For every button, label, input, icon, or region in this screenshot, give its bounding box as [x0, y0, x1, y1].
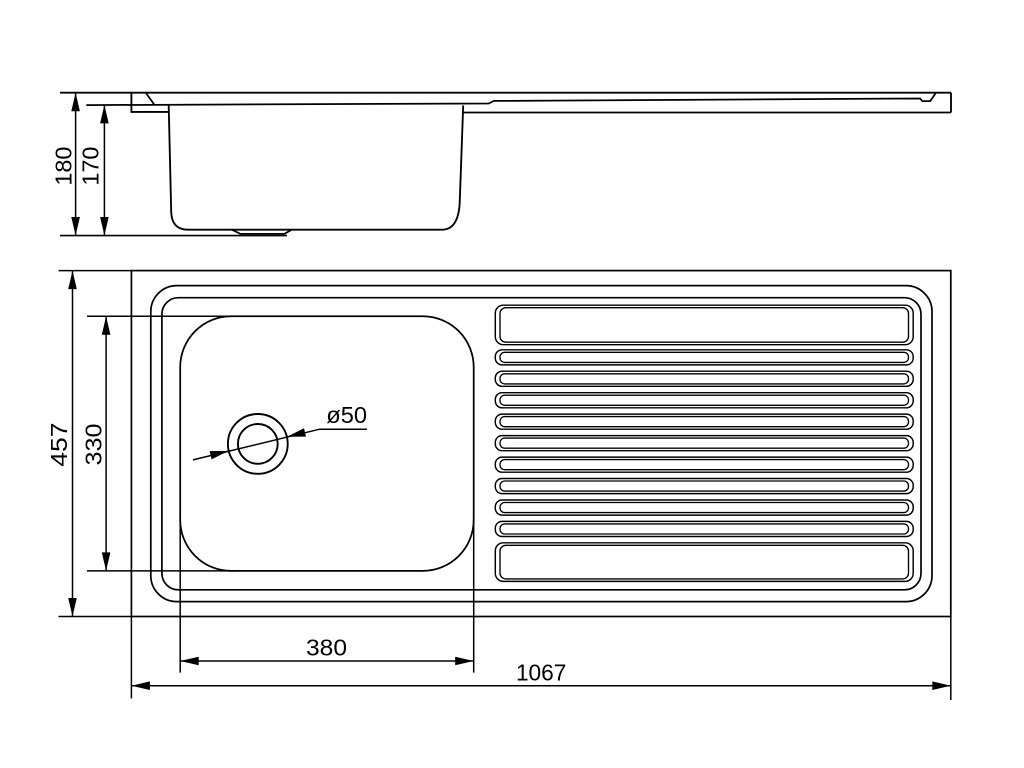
svg-text:170: 170 [78, 147, 104, 186]
svg-text:ø50: ø50 [326, 402, 367, 428]
svg-text:457: 457 [46, 422, 72, 466]
svg-text:180: 180 [50, 147, 76, 186]
svg-text:1067: 1067 [516, 660, 567, 686]
svg-text:380: 380 [306, 635, 347, 661]
svg-text:330: 330 [81, 424, 107, 466]
